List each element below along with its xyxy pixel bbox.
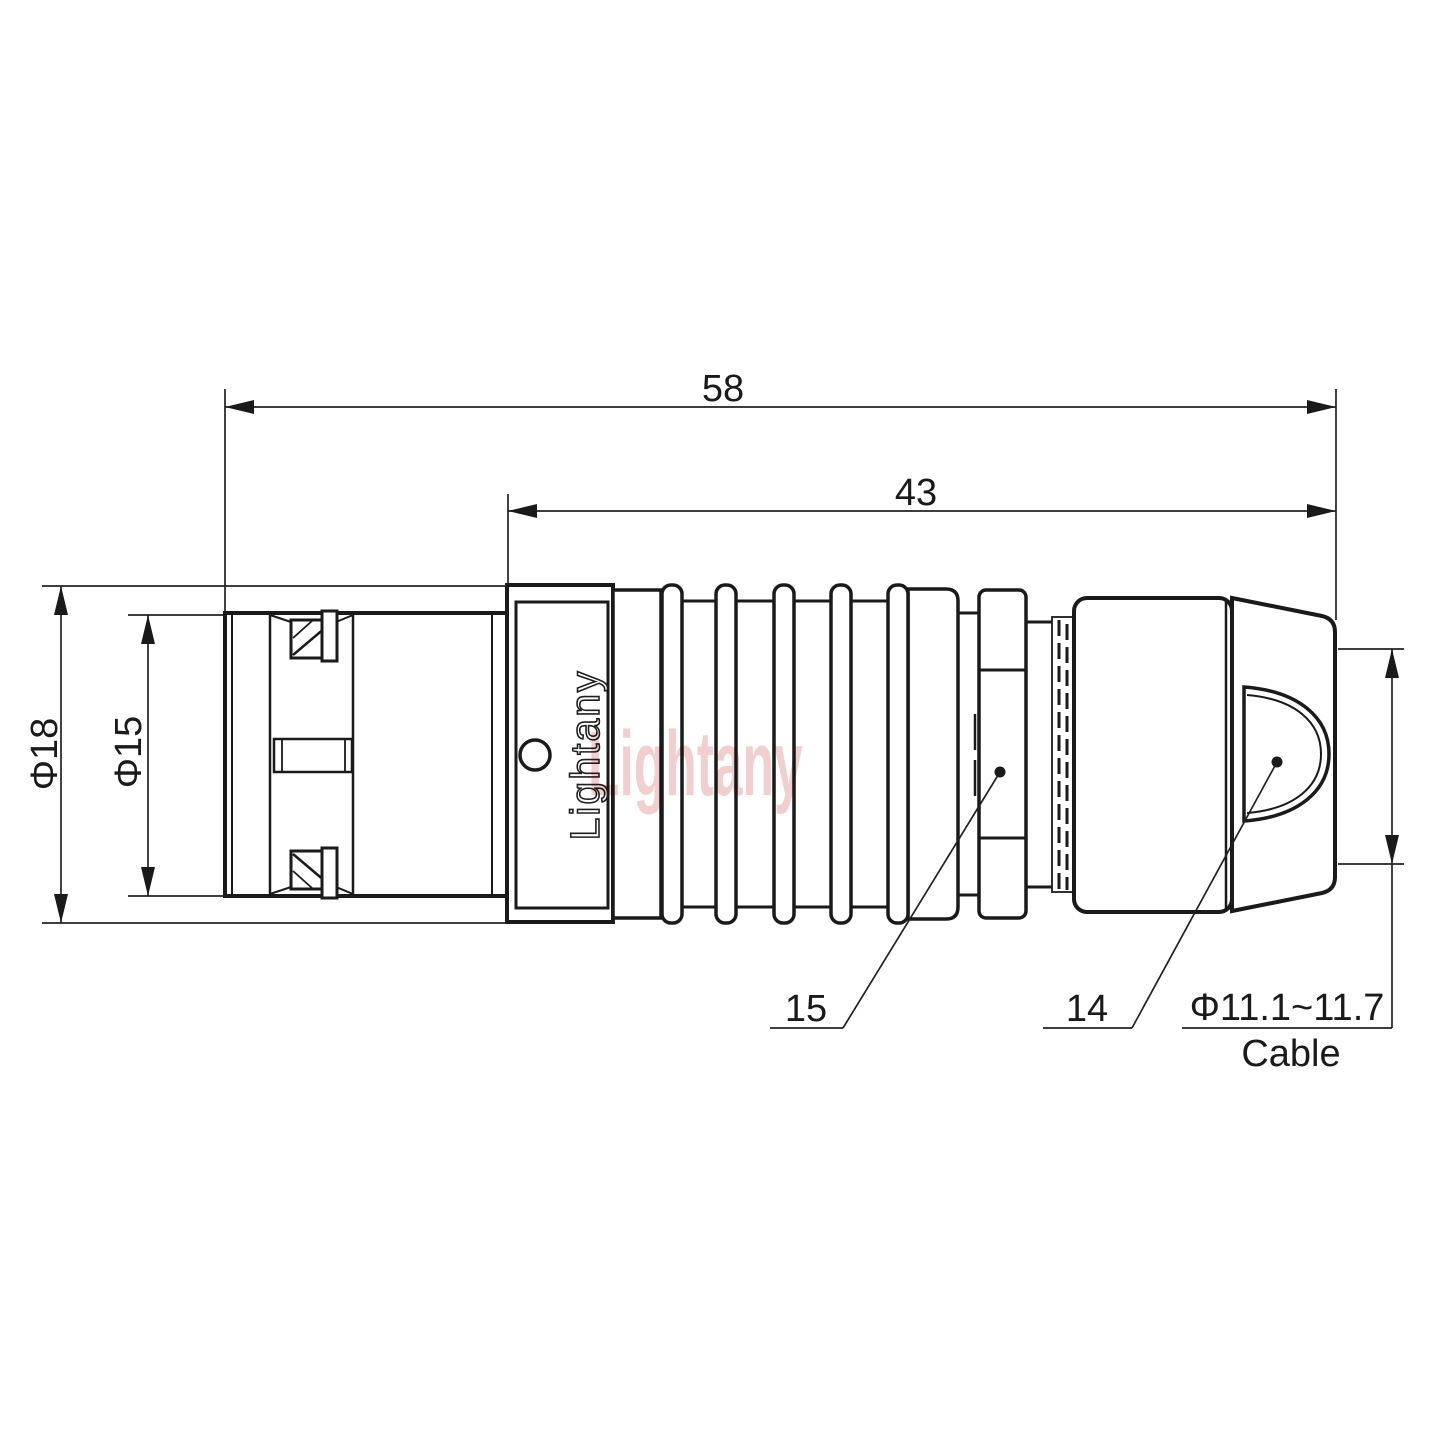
boot-rib [716,585,736,923]
dim-label-58: 58 [702,368,744,410]
arrowhead [1385,835,1399,864]
front-sleeve [225,613,507,896]
arrowhead [54,894,68,923]
cone-tail [1232,598,1335,911]
keyway-slot [274,739,352,772]
arrowhead [141,615,155,644]
part-label-14: 14 [1066,988,1108,1030]
neck-front [958,613,979,895]
arrowhead [141,867,155,896]
boot-rib [888,585,908,923]
part-label-15: 15 [785,988,827,1030]
arrowhead [1307,504,1336,518]
boot-rib [831,585,851,923]
boot-rib [774,585,794,923]
ribbed-boot [613,585,958,923]
connector-drawing: 58 43 Φ18 Φ15 [0,0,1440,1440]
hex-nut [979,590,1026,918]
serrated-ring [1052,617,1074,892]
arrowhead [508,504,537,518]
cable-diameter-label: Φ11.1~11.7 [1190,987,1385,1029]
release-hole [520,740,550,770]
arrowhead [225,400,254,414]
dim-label-dia15: Φ15 [108,716,150,789]
dim-label-43: 43 [895,472,937,514]
leader-dot [995,767,1006,778]
arrowhead [54,586,68,615]
arrowhead [1307,400,1336,414]
arrowhead [1385,649,1399,678]
back-nut [1074,598,1232,912]
leader-dot [1272,757,1283,768]
engraved-brand-text: Lightany [562,669,608,840]
dim-label-dia18: Φ18 [24,718,66,791]
neck-rear [1026,622,1052,887]
cable-word-label: Cable [1241,1033,1340,1075]
technical-drawing-page: 58 43 Φ18 Φ15 [0,0,1440,1440]
boot-rib [662,585,682,923]
